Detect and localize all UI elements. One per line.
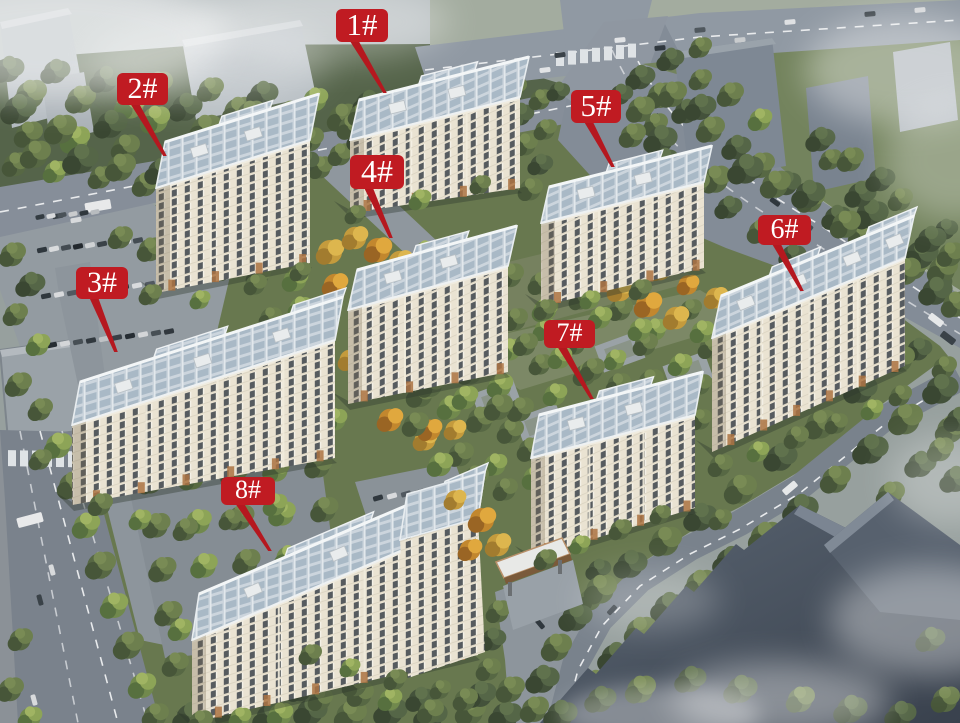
svg-text:4#: 4# bbox=[361, 153, 393, 189]
svg-text:7#: 7# bbox=[557, 318, 583, 347]
svg-text:8#: 8# bbox=[235, 475, 261, 504]
svg-text:5#: 5# bbox=[581, 88, 612, 123]
svg-text:2#: 2# bbox=[128, 72, 158, 105]
svg-text:3#: 3# bbox=[87, 266, 117, 299]
svg-text:1#: 1# bbox=[347, 7, 378, 42]
svg-text:6#: 6# bbox=[771, 214, 799, 245]
